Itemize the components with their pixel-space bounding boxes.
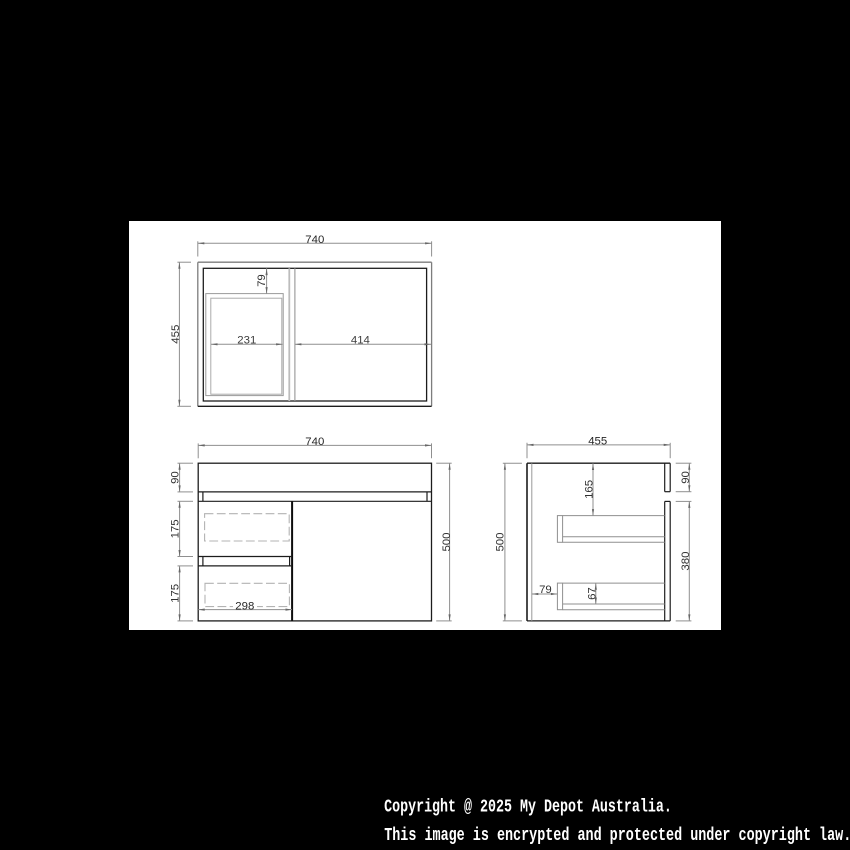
svg-text:79: 79 <box>539 584 552 596</box>
svg-text:414: 414 <box>351 334 370 346</box>
svg-text:455: 455 <box>170 325 182 344</box>
svg-text:380: 380 <box>680 552 692 571</box>
svg-text:79: 79 <box>256 274 268 287</box>
svg-text:500: 500 <box>495 533 507 552</box>
svg-text:175: 175 <box>169 584 181 603</box>
svg-text:This image is encrypted and pr: This image is encrypted and protected un… <box>384 825 850 846</box>
svg-text:67: 67 <box>586 587 598 600</box>
svg-text:90: 90 <box>680 471 692 484</box>
svg-text:231: 231 <box>237 334 256 346</box>
svg-text:298: 298 <box>235 600 254 612</box>
svg-text:455: 455 <box>588 436 607 448</box>
svg-text:740: 740 <box>305 436 324 448</box>
svg-text:500: 500 <box>441 533 453 552</box>
svg-text:740: 740 <box>305 234 324 246</box>
svg-text:175: 175 <box>169 519 181 538</box>
svg-text:165: 165 <box>583 480 595 499</box>
svg-text:90: 90 <box>169 471 181 484</box>
svg-text:Copyright @ 2025 My Depot Aust: Copyright @ 2025 My Depot Australia. <box>384 797 672 818</box>
